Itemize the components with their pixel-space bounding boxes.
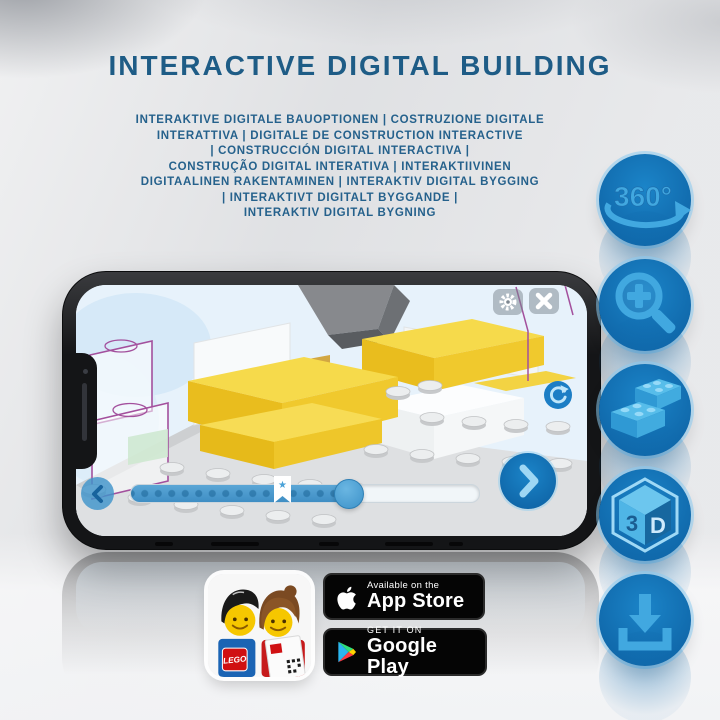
phone-notch	[76, 353, 97, 469]
page-title: INTERACTIVE DIGITAL BUILDING	[0, 50, 720, 82]
svg-text:3: 3	[626, 511, 638, 536]
app-screen: ★	[76, 285, 587, 536]
multilingual-subtitle: INTERAKTIVE DIGITALE BAUOPTIONEN | COSTR…	[60, 113, 620, 222]
svg-text:360°: 360°	[614, 181, 672, 212]
reset-rotation-button[interactable]	[544, 381, 572, 409]
subtitle-line: INTERAKTIVE DIGITALE BAUOPTIONEN | COSTR…	[60, 113, 620, 129]
zoom-in-icon	[599, 259, 691, 351]
subtitle-line: | CONSTRUCCIÓN DIGITAL INTERACTIVA |	[60, 144, 620, 160]
google-play-badge[interactable]: GET IT ON Google Play	[323, 628, 487, 676]
subtitle-line: CONSTRUÇÃO DIGITAL INTERATIVA | INTERAKT…	[60, 160, 620, 176]
feature-icon-360-rotation: 360°	[599, 154, 691, 246]
phone-mockup: ★	[62, 271, 601, 550]
settings-button[interactable]	[493, 289, 523, 315]
slider-fill	[131, 485, 355, 502]
gear-icon	[497, 291, 519, 313]
feature-icon-zoom	[599, 259, 691, 351]
close-icon	[533, 290, 555, 312]
phone-port	[449, 542, 463, 546]
phone-port	[155, 542, 173, 546]
subtitle-line: INTERATTIVA | DIGITALE DE CONSTRUCTION I…	[60, 129, 620, 145]
phone-speaker	[211, 542, 259, 546]
feature-icon-bricks	[599, 364, 691, 456]
google-play-icon	[336, 638, 358, 666]
subtitle-line: DIGITAALINEN RAKENTAMINEN | INTERAKTIV D…	[60, 175, 620, 191]
download-icon	[599, 574, 691, 666]
360-rotation-icon: 360°	[599, 154, 691, 246]
app-store-badge[interactable]: Available on the App Store	[323, 573, 485, 620]
apple-icon	[336, 583, 358, 610]
svg-text:D: D	[650, 513, 666, 538]
refresh-icon	[546, 383, 570, 407]
subtitle-line: INTERAKTIV DIGITAL BYGNING	[60, 206, 620, 222]
feature-icon-3d-view: 3 D	[599, 469, 691, 561]
slider-thumb[interactable]	[334, 479, 364, 509]
next-step-button[interactable]	[500, 453, 556, 509]
subtitle-line: | INTERAKTIVT DIGITALT BYGGANDE |	[60, 191, 620, 207]
lego-minifigures-art: LEGO	[208, 574, 311, 677]
page: INTERACTIVE DIGITAL BUILDING INTERAKTIVE…	[0, 0, 720, 720]
lego-app-icon[interactable]: LEGO	[208, 574, 311, 677]
chevron-left-icon	[82, 478, 114, 510]
lego-bricks-icon	[599, 364, 691, 456]
phone-speaker	[385, 542, 433, 546]
close-button[interactable]	[529, 288, 559, 314]
earpiece-slit	[82, 383, 87, 441]
3d-cube-icon: 3 D	[599, 469, 691, 561]
feature-icon-download	[599, 574, 691, 666]
camera-dot	[83, 369, 88, 374]
previous-step-button[interactable]	[81, 477, 114, 510]
app-store-label: App Store	[367, 591, 464, 612]
google-play-label: Google Play	[367, 636, 475, 678]
chevron-right-icon	[500, 453, 556, 509]
phone-port	[319, 542, 339, 546]
build-progress-slider[interactable]: ★	[130, 484, 480, 503]
